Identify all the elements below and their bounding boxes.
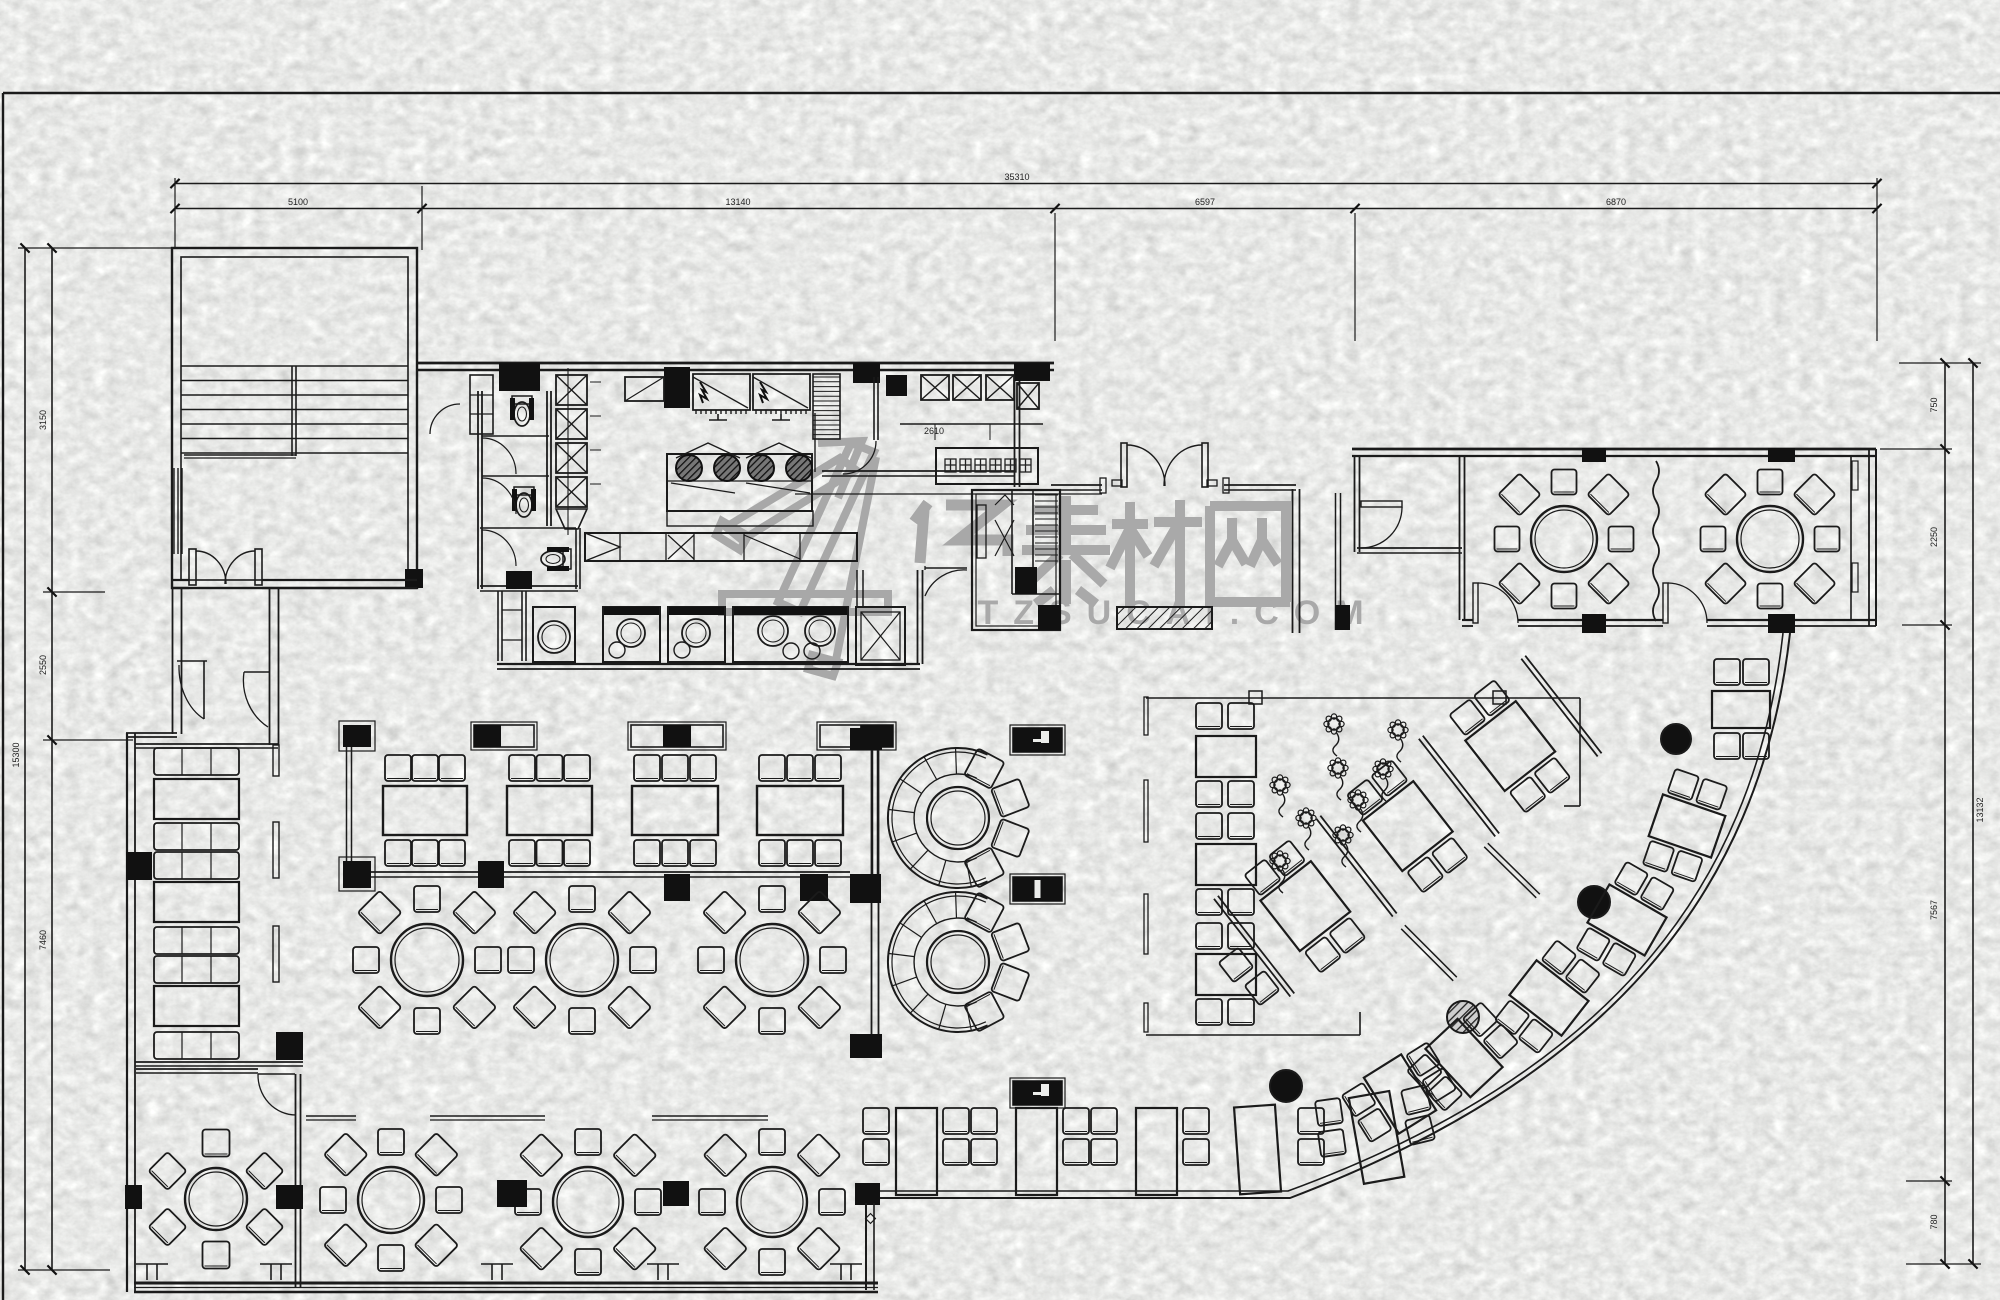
svg-text:7567: 7567 [1929,900,1939,920]
svg-text:6870: 6870 [1606,197,1626,207]
svg-text:5100: 5100 [288,197,308,207]
svg-text:780: 780 [1929,1214,1939,1229]
svg-text:3150: 3150 [38,410,48,430]
svg-text:13140: 13140 [725,197,750,207]
svg-text:7460: 7460 [38,930,48,950]
svg-text:2610: 2610 [924,426,944,436]
svg-text:15300: 15300 [11,742,21,767]
svg-text:750: 750 [1929,397,1939,412]
svg-text:13132: 13132 [1975,797,1985,822]
svg-text:6597: 6597 [1195,197,1215,207]
svg-text:2550: 2550 [38,655,48,675]
svg-text:2250: 2250 [1929,527,1939,547]
svg-text:35310: 35310 [1004,172,1029,182]
